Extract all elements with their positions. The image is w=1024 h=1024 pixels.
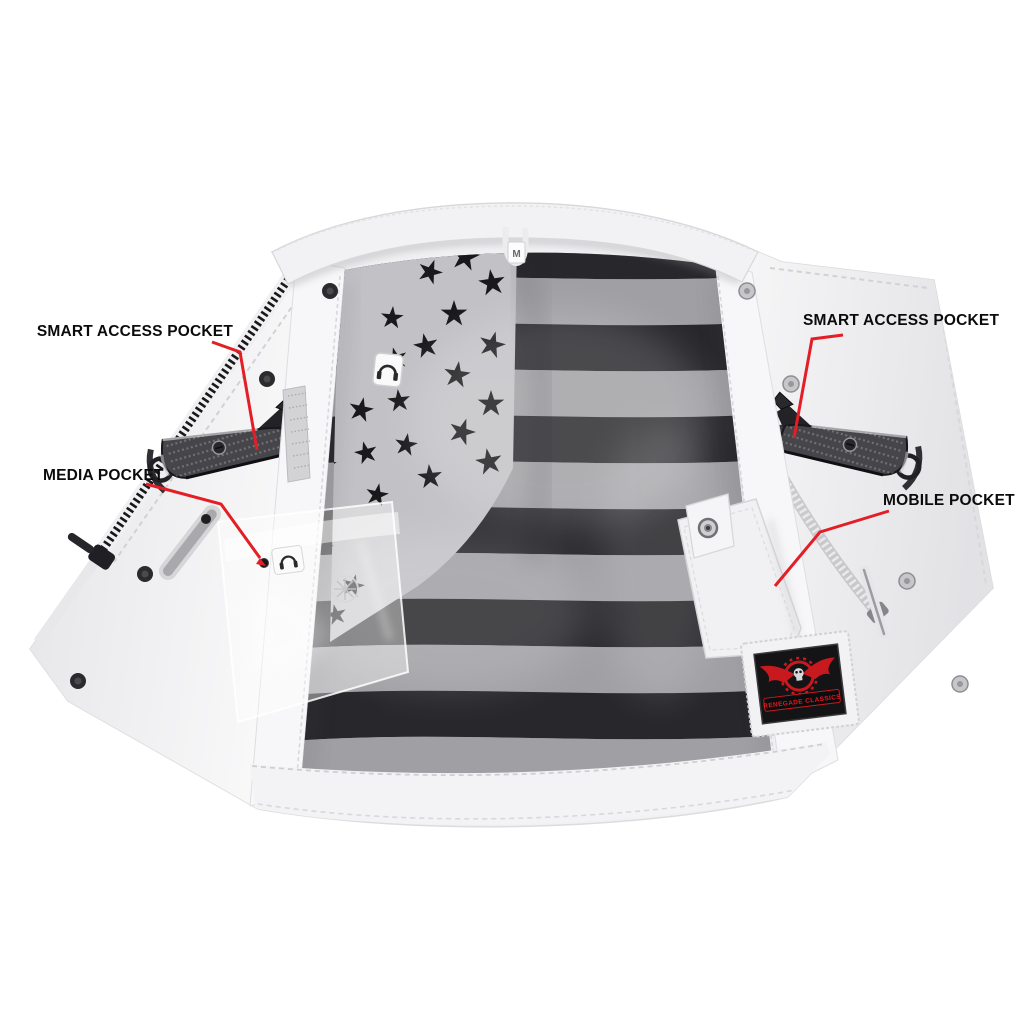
vest-illustration: RENEGADE CLASSICS M [0, 0, 1024, 1024]
label-smart-access-pocket-right: SMART ACCESS POCKET [803, 313, 999, 329]
grommet-icon [699, 519, 717, 537]
size-tag-letter: M [512, 249, 520, 260]
wheel-emblem-icon [332, 576, 358, 602]
velcro-strip [283, 386, 310, 482]
label-mobile-pocket: MOBILE POCKET [883, 493, 1015, 509]
product-feature-diagram: RENEGADE CLASSICS M [0, 0, 1024, 1024]
label-smart-access-pocket-left: SMART ACCESS POCKET [0, 324, 233, 340]
headphone-port-tag [372, 353, 403, 388]
brand-patch: RENEGADE CLASSICS [741, 631, 860, 737]
label-media-pocket: MEDIA POCKET [43, 468, 164, 484]
